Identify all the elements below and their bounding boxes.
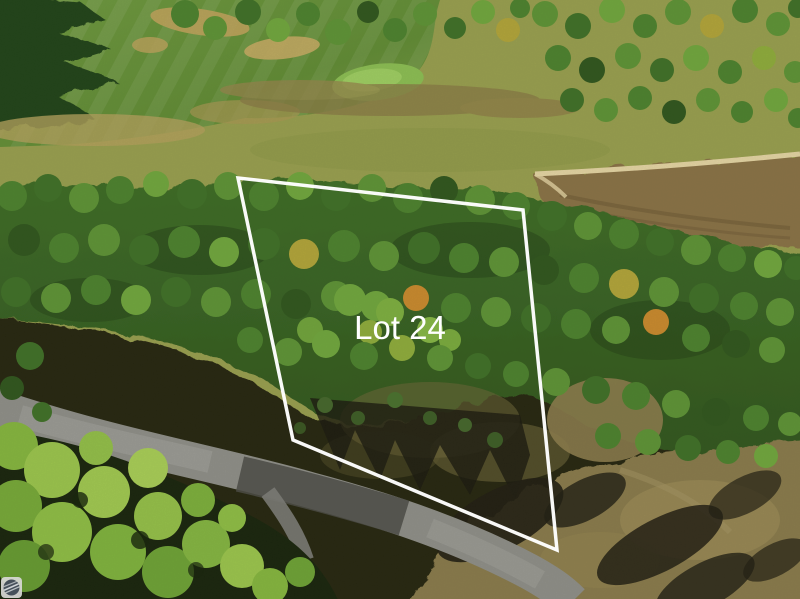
lot-label: Lot 24 xyxy=(354,309,446,346)
photo-grain xyxy=(0,0,800,599)
mls-watermark xyxy=(1,577,22,598)
aerial-photo: Lot 24 xyxy=(0,0,800,599)
